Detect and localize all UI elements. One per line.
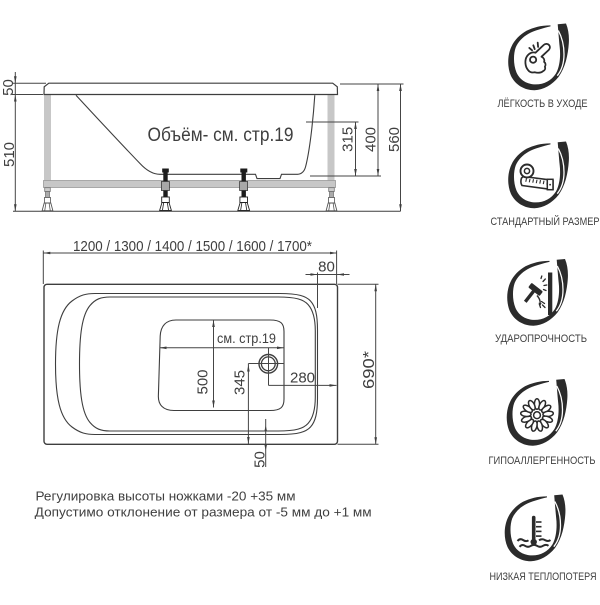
svg-text:280: 280 (290, 370, 315, 387)
svg-text:345: 345 (231, 370, 248, 395)
svg-text:1200 / 1300 / 1400 / 1500 / 16: 1200 / 1300 / 1400 / 1500 / 1600 / 1700* (73, 238, 312, 255)
svg-text:560: 560 (386, 127, 403, 152)
svg-text:Объём- см. стр.19: Объём- см. стр.19 (148, 124, 294, 146)
svg-text:315: 315 (340, 127, 357, 152)
svg-text:50: 50 (0, 79, 17, 96)
svg-text:НИЗКАЯ ТЕПЛОПОТЕРЯ: НИЗКАЯ ТЕПЛОПОТЕРЯ (490, 571, 597, 583)
svg-text:Допустимо отклонение от размер: Допустимо отклонение от размера от -5 мм… (35, 505, 372, 520)
svg-text:Регулировка высоты ножками -20: Регулировка высоты ножками -20 +35 мм (36, 489, 296, 504)
svg-text:СТАНДАРТНЫЙ РАЗМЕР: СТАНДАРТНЫЙ РАЗМЕР (491, 215, 600, 228)
svg-text:510: 510 (1, 142, 18, 167)
svg-text:400: 400 (362, 127, 379, 152)
svg-text:50: 50 (252, 451, 269, 468)
svg-text:80: 80 (318, 259, 335, 276)
svg-text:690*: 690* (361, 351, 378, 389)
svg-text:УДАРОПРОЧНОСТЬ: УДАРОПРОЧНОСТЬ (495, 333, 587, 345)
svg-text:ГИПОАЛЛЕРГЕННОСТЬ: ГИПОАЛЛЕРГЕННОСТЬ (489, 455, 596, 467)
svg-text:500: 500 (194, 369, 211, 394)
svg-text:см. стр.19: см. стр.19 (217, 330, 276, 346)
svg-text:ЛЁГКОСТЬ В УХОДЕ: ЛЁГКОСТЬ В УХОДЕ (498, 98, 588, 110)
